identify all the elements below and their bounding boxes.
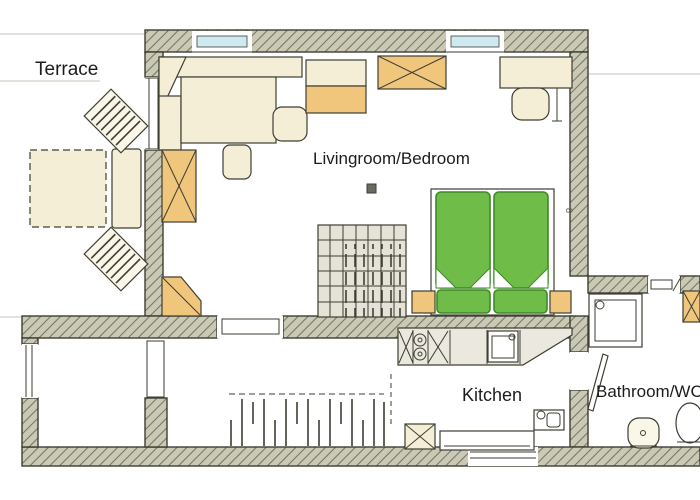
wall-bottom [22,447,700,466]
label-living-bedroom: Livingroom/Bedroom [313,149,470,168]
wall-bathroom-top-left [588,276,648,293]
desk [500,57,572,88]
floor-plan: Terrace Livingroom/Bedroom Kitchen Bathr… [0,0,700,500]
armchair [273,107,307,141]
stool [223,145,251,179]
wall-leftroom-stub [22,338,38,344]
bed-footbox-left [437,290,490,313]
mattress-right [494,192,548,288]
kitchen-sink [488,331,518,362]
kitchen-appliance [534,410,564,430]
bed-footbox-right [494,290,547,313]
tiled-stove [318,225,406,317]
label-kitchen: Kitchen [462,385,522,405]
wall-west-lower [145,150,163,316]
shower [589,294,642,347]
wall-socket [367,184,376,193]
wall-leftroom-west [22,398,38,447]
wall-mid-left [22,316,217,338]
door-living-to-kitchen [217,316,283,338]
bathroom-cabinet [683,291,700,322]
window-living-north-2 [446,31,504,54]
wall-kitchen-east-lower [570,390,588,447]
terrace-bench [112,149,141,228]
nightstand-left [412,291,435,313]
window-bathroom [648,276,681,293]
terrace-table [30,150,106,227]
label-bathroom: Bathroom/WC [596,382,700,401]
double-bed [431,189,554,315]
window-living-north-1 [192,31,252,54]
floor-plan-drawing: Terrace Livingroom/Bedroom Kitchen Bathr… [0,0,700,500]
sideboard [306,60,366,113]
wall-kitchen-east-upper [570,316,588,352]
mattress-left [436,192,490,288]
nightstand-right [550,291,571,313]
label-terrace: Terrace [35,59,98,80]
wall-east [570,52,588,276]
label-wall-dimension: 8 [564,208,574,213]
kitchen-cabinet [405,424,435,449]
wall-hall-west [145,398,167,447]
kitchen-table [440,431,534,450]
wardrobe-west [162,150,196,222]
toilet [676,403,700,443]
wardrobe-north [378,56,446,89]
bidet [628,418,659,448]
window-left-room [22,344,38,398]
desk-chair [512,88,549,120]
